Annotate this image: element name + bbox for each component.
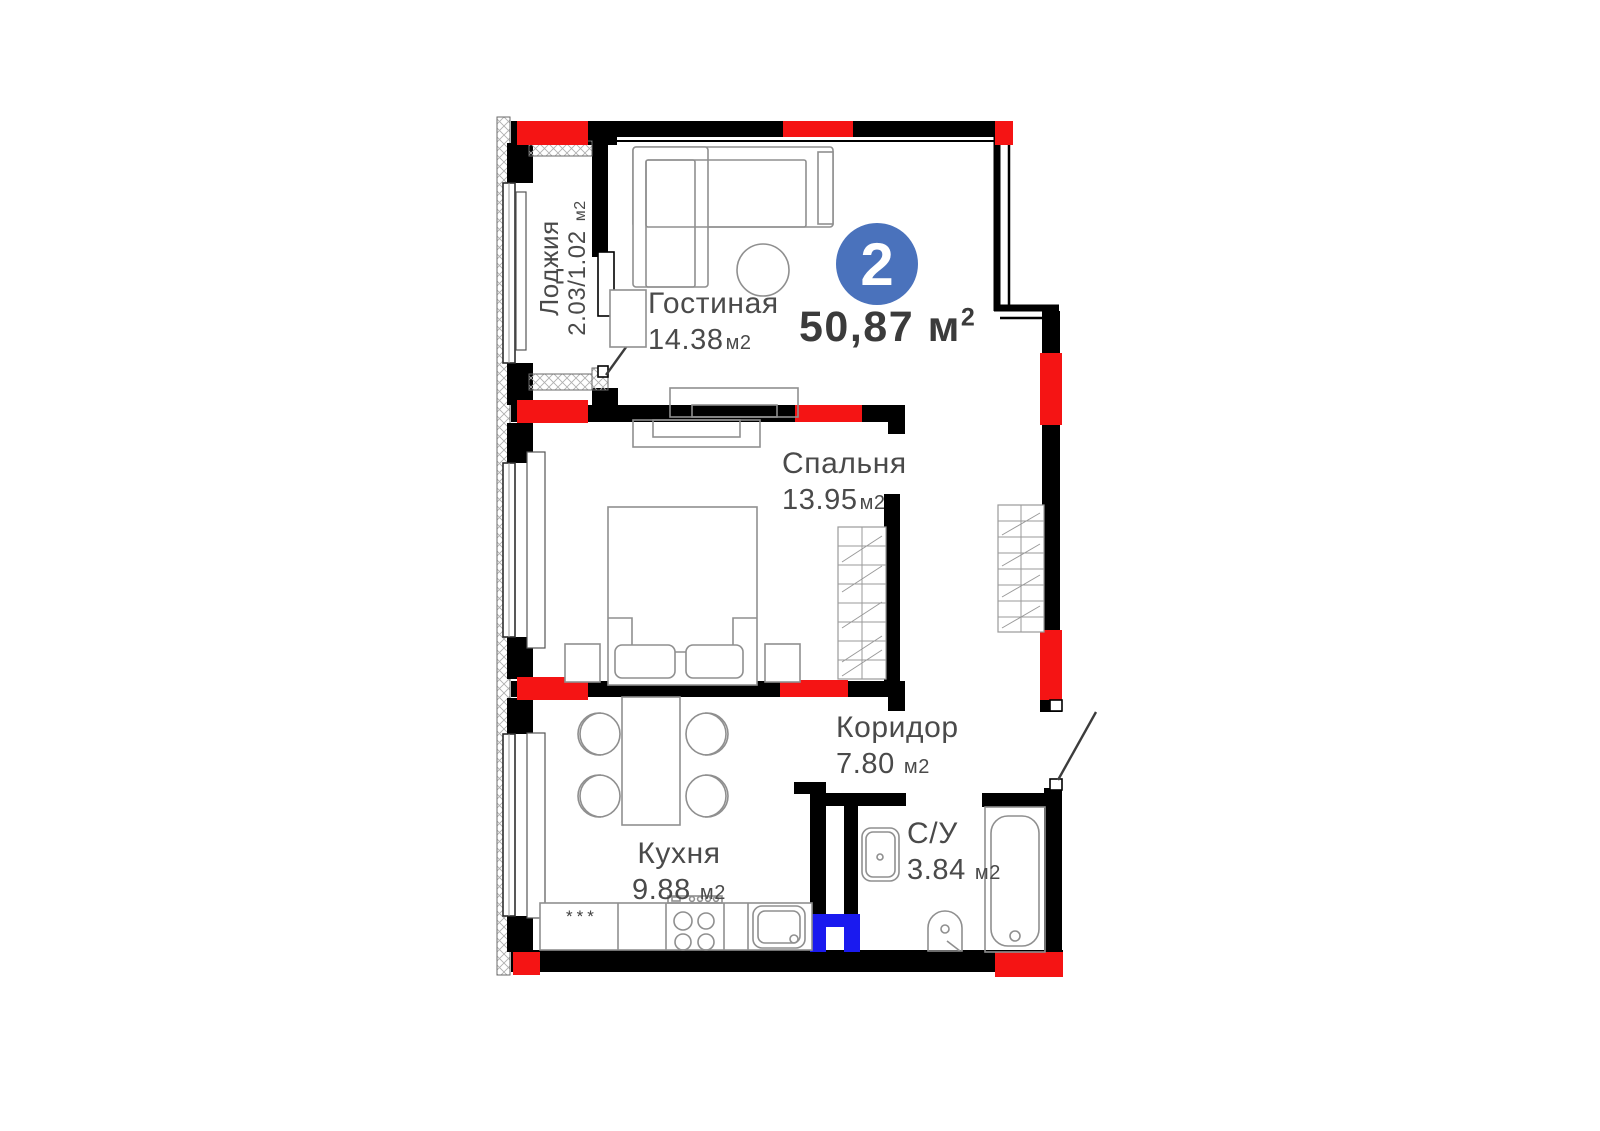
- loggia-label: Лоджия 2.03/1.02м2: [536, 200, 590, 336]
- area-value: 13.95: [782, 484, 858, 516]
- room-name: С/У: [907, 818, 1001, 850]
- chair: [686, 775, 728, 817]
- dining-set: [578, 697, 728, 825]
- area-value: 9.88: [632, 874, 691, 906]
- bedroom-window-sill: [527, 452, 545, 648]
- area-unit: м2: [572, 200, 589, 221]
- corridor-closet: [998, 505, 1044, 632]
- bathtub-drain: [1010, 931, 1020, 941]
- sofa-armrest: [818, 152, 833, 224]
- entrance-door: [1050, 700, 1096, 790]
- toilet: [928, 911, 962, 951]
- structural-column: [1040, 353, 1062, 425]
- structural-column: [783, 121, 853, 137]
- wall-segment: [511, 950, 1063, 972]
- wall-segment: [810, 782, 826, 916]
- structural-column: [513, 952, 540, 975]
- floor-plan-drawing: ***: [0, 0, 1600, 1131]
- area-unit: м2: [700, 882, 726, 904]
- corridor-label: Коридор 7.80м2: [836, 712, 959, 779]
- structural-column: [1040, 630, 1062, 700]
- kitchen-window-sill: [527, 733, 545, 918]
- wall-segment: [1044, 788, 1062, 952]
- area-value: 14.38: [648, 324, 724, 356]
- room-name: Спальня: [782, 448, 907, 480]
- room-area: 13.95м2: [782, 485, 907, 515]
- loggia-window-sash: [516, 192, 526, 350]
- room-name: Коридор: [836, 712, 959, 744]
- wall-segment: [592, 388, 618, 406]
- wall-segment: [982, 793, 1045, 807]
- bathroom-label: С/У 3.84м2: [907, 818, 1001, 885]
- structural-column: [517, 121, 588, 145]
- structural-column: [795, 405, 862, 422]
- basin-drain: [877, 854, 883, 860]
- loggia-hatch-wall: [529, 374, 592, 390]
- area-value: 2.03/1.02: [564, 230, 591, 336]
- area-unit: м2: [975, 862, 1001, 884]
- room-area: 3.84м2: [907, 855, 1001, 885]
- structural-column: [995, 121, 1013, 145]
- fridge-marking: ***: [566, 907, 598, 926]
- structural-column: [517, 400, 588, 423]
- wall-segment: [888, 422, 905, 434]
- structural-column: [995, 952, 1063, 977]
- wall-segment: [507, 916, 533, 952]
- wall-segment: [592, 125, 608, 257]
- dining-table: [622, 697, 680, 825]
- chair: [578, 713, 620, 755]
- chair: [686, 713, 728, 755]
- console-inner: [653, 420, 740, 437]
- area-unit: м2: [860, 492, 886, 514]
- area-unit: м2: [904, 756, 930, 778]
- vent-duct: [810, 914, 860, 952]
- room-area: 7.80м2: [836, 749, 959, 779]
- nightstand: [565, 644, 600, 682]
- toilet-detail: [947, 941, 960, 951]
- room-area: 14.38м2: [648, 325, 779, 355]
- room-name: Гостиная: [648, 288, 779, 320]
- room-area: 2.03/1.02м2: [565, 200, 590, 336]
- room-name: Кухня: [632, 838, 726, 870]
- tv-stand: [610, 290, 646, 347]
- toilet-drain: [941, 925, 949, 933]
- bedroom-wardrobe: [838, 527, 886, 679]
- area-value: 3.84: [907, 854, 966, 886]
- pillow: [686, 645, 743, 678]
- total-area-unit-sup: 2: [961, 304, 975, 332]
- kitchen-label: Кухня 9.88м2: [632, 838, 726, 905]
- room-name: Лоджия: [536, 200, 563, 336]
- wall-segment: [507, 698, 533, 734]
- entrance-door-leaf: [1058, 712, 1096, 780]
- area-value: 7.80: [836, 748, 895, 780]
- bed: [608, 507, 757, 685]
- sofa: [633, 147, 833, 287]
- total-area-value: 50,87: [799, 303, 914, 351]
- nightstand: [765, 644, 800, 682]
- door-frame: [1050, 779, 1062, 790]
- chair: [578, 775, 620, 817]
- total-area: 50,87 м2: [799, 303, 975, 352]
- wall-segment: [824, 793, 906, 806]
- floor-plan-page: *** Лоджия 2.03/1.02м2 Гостиная 14.38м2 …: [0, 0, 1600, 1131]
- wall-segment: [844, 800, 858, 916]
- vent-duct-leg: [844, 914, 860, 952]
- living-room-label: Гостиная 14.38м2: [648, 288, 779, 355]
- total-area-unit: м: [928, 303, 961, 351]
- door-frame: [1050, 700, 1062, 711]
- wall-segment: [888, 697, 905, 711]
- bedroom-label: Спальня 13.95м2: [782, 448, 907, 515]
- sofa-chaise: [633, 147, 708, 287]
- console-bottom: [633, 420, 760, 447]
- room-count-value: 2: [860, 230, 893, 299]
- room-count-badge: 2: [836, 223, 918, 305]
- area-unit: м2: [726, 332, 752, 354]
- pillow: [615, 645, 675, 678]
- room-area: 9.88м2: [632, 875, 726, 905]
